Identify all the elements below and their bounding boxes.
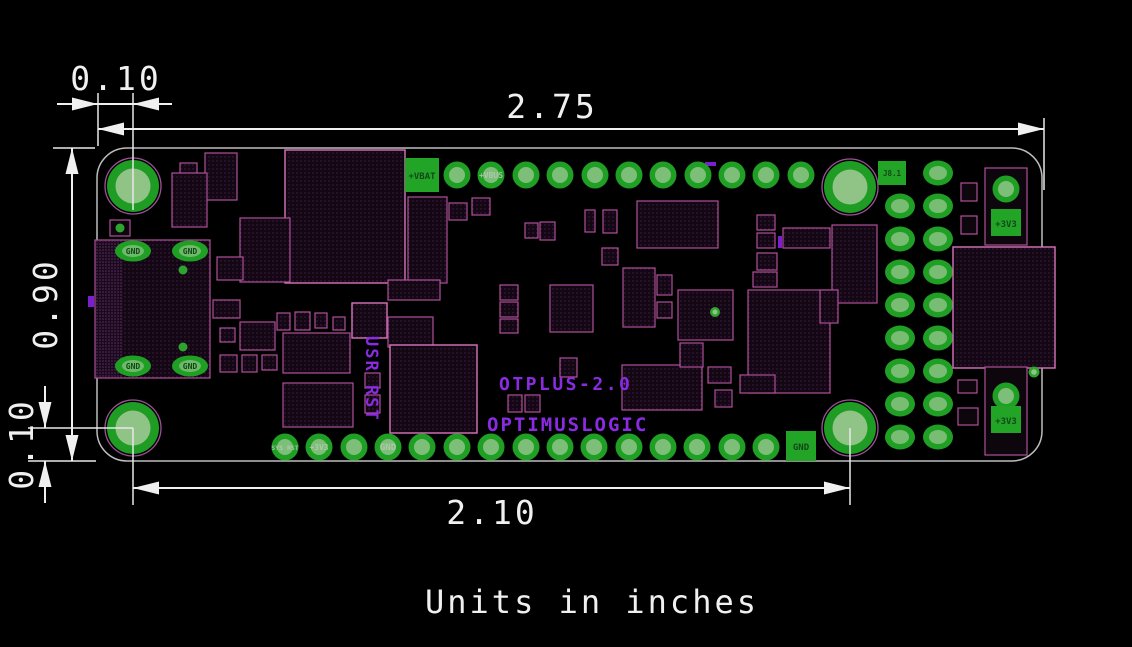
- vbus-pad-label: +VBUS: [479, 171, 503, 180]
- usb-gnd-pad-label: GND: [183, 247, 198, 256]
- dim-board-width-value: 2.75: [506, 87, 597, 126]
- dim-hole-span-value: 2.10: [446, 493, 537, 532]
- pin-pads-top-row: +VBAT +VBUS: [405, 158, 815, 192]
- test-pad: [110, 220, 130, 236]
- usb-connector: GND GND GND GND: [95, 240, 210, 378]
- right-connector-footprint: [953, 247, 1055, 368]
- units-note: Units in inches: [425, 583, 759, 621]
- dim-board-height-value: 0.90: [26, 258, 65, 349]
- j8-1-pad-label: J8.1: [883, 169, 902, 178]
- silkscreen-usr-rst-label: USR RST: [361, 336, 381, 422]
- p3v3-right-bottom-label: +3V3: [995, 417, 1017, 427]
- silkscreen-brand-name: OPTIMUSLOGIC: [487, 414, 648, 436]
- dim-hole-offset-y: 0.10: [2, 386, 52, 503]
- p3v3-right-top-label: +3V3: [995, 220, 1017, 230]
- usb-gnd-pad-label: GND: [126, 362, 141, 371]
- pcb-drawing-svg: GND GND GND GND +VBAT +VBUS SYS RST +3V3…: [0, 0, 1132, 647]
- mounting-hole-top-right: [822, 159, 878, 215]
- gnd-pad-label: GND: [380, 443, 397, 453]
- silkscreen-product-name: OTPLUS-2.0: [499, 374, 632, 395]
- dim-hole-offset-x: 0.10: [57, 59, 172, 111]
- usb-gnd-pad-label: GND: [183, 362, 198, 371]
- dim-hole-offset-x-value: 0.10: [70, 59, 161, 98]
- big-ic-footprint: [285, 150, 405, 283]
- gnd-square-pad-label: GND: [793, 443, 810, 453]
- dim-hole-offset-y-value: 0.10: [2, 398, 41, 489]
- sys-rst-pad-label: SYS RST: [271, 444, 298, 452]
- p3v3-pad-label: +3V3: [309, 443, 328, 452]
- usb-gnd-pad-label: GND: [126, 247, 141, 256]
- dim-board-width: 2.75: [98, 87, 1044, 136]
- pcb-dimension-drawing: GND GND GND GND +VBAT +VBUS SYS RST +3V3…: [0, 0, 1132, 647]
- dim-hole-span: 2.10: [133, 482, 850, 533]
- vbat-pad-label: +VBAT: [408, 172, 436, 182]
